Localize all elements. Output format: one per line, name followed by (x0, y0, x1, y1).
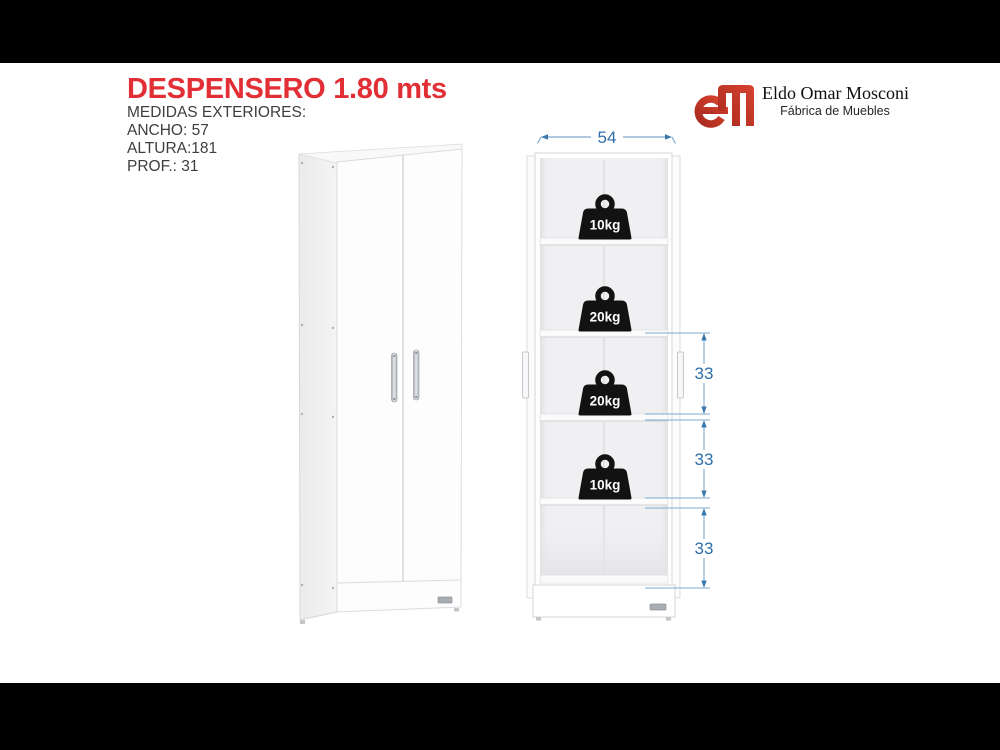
open-door-handle-right (678, 352, 684, 398)
interior-shadow-right (658, 158, 668, 582)
capacity-label: 10kg (590, 478, 621, 493)
arrowhead-left-icon (541, 134, 548, 140)
door-handle-right (414, 350, 420, 400)
cabinet-foot (536, 617, 541, 621)
shelf-height-label: 33 (695, 364, 714, 383)
closed-cabinet-illustration (290, 138, 475, 633)
brand-name: Eldo Omar Mosconi (762, 83, 908, 103)
cabinet-front (337, 149, 462, 612)
content-area: DESPENSERO 1.80 mts MEDIDAS EXTERIORES: … (0, 63, 1000, 683)
brand-plate (650, 604, 666, 610)
cabinet-floor (540, 575, 668, 583)
shelf-height-label: 33 (695, 539, 714, 558)
capacity-label: 10kg (590, 218, 621, 233)
cabinet-foot (300, 620, 305, 624)
page-title: DESPENSERO 1.80 mts (127, 74, 447, 104)
door-handle-left (392, 353, 398, 402)
brand-text-block: Eldo Omar Mosconi Fábrica de Muebles (762, 83, 908, 118)
measure-width: ANCHO: 57 (127, 122, 306, 140)
capacity-label: 20kg (590, 394, 621, 409)
measures-heading: MEDIDAS EXTERIORES: (127, 104, 306, 122)
exterior-measures: MEDIDAS EXTERIORES: ANCHO: 57 ALTURA:181… (127, 104, 306, 176)
product-sheet: DESPENSERO 1.80 mts MEDIDAS EXTERIORES: … (0, 0, 1000, 750)
brand-tagline: Fábrica de Muebles (762, 104, 908, 118)
measure-height: ALTURA:181 (127, 140, 306, 158)
interior-shadow-bottom (540, 520, 668, 582)
open-door-handle-left (523, 352, 529, 398)
cabinet-foot (454, 608, 459, 612)
letterbox-top (0, 0, 1000, 63)
cabinet-foot (666, 617, 671, 621)
cabinet-base (533, 585, 675, 617)
brand-plate (438, 597, 452, 603)
interior-shadow-left (540, 158, 550, 582)
arrowhead-right-icon (665, 134, 672, 140)
open-cabinet-illustration: 10kg 20kg 20kg 10kg (498, 120, 728, 635)
measure-depth: PROF.: 31 (127, 158, 306, 176)
cabinet-side-panel (299, 154, 337, 620)
capacity-label: 20kg (590, 310, 621, 325)
width-dimension-label: 54 (598, 128, 617, 147)
shelf-height-label: 33 (695, 450, 714, 469)
letterbox-bottom (0, 683, 1000, 750)
